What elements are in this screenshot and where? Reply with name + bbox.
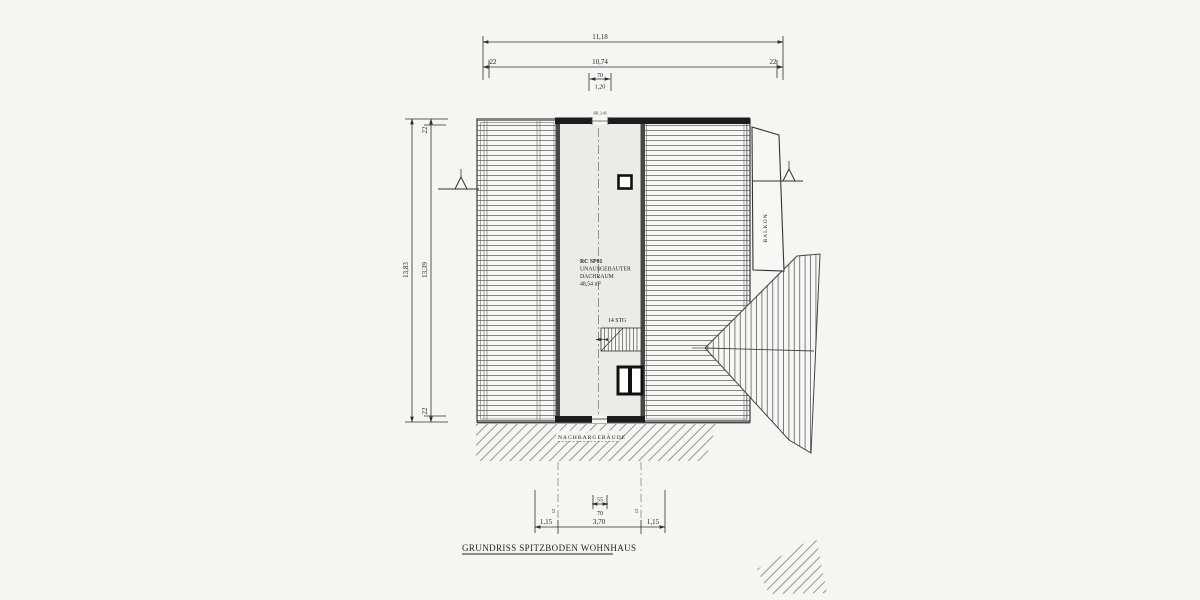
chimney-small xyxy=(619,176,632,189)
dim-top-window-width: 70 xyxy=(597,73,603,79)
floorplan-drawing: NACHBARGEBÄUDE BALKON xyxy=(0,0,1200,600)
room-code: RC SP01 xyxy=(580,259,602,265)
room-wall-left xyxy=(556,119,561,422)
stairs-label: 14 STG xyxy=(608,318,626,324)
dim-top-left-offset: 22 xyxy=(490,58,498,66)
dim-left-middle: 13,39 xyxy=(421,262,429,278)
dim-bottom-lower: 70 xyxy=(597,511,603,517)
room-name-line1: UNAUSGEBAUTER xyxy=(580,267,631,273)
dim-bottom-right: 1,15 xyxy=(647,518,660,526)
neighbor-building-hatch: NACHBARGEBÄUDE xyxy=(476,424,717,461)
balcony-label: BALKON xyxy=(763,213,769,242)
left-roof-wing xyxy=(477,119,557,422)
dim-top-overall: 11,18 xyxy=(592,33,608,41)
top-window-opening: BR 3.46 xyxy=(592,111,608,125)
dim-top-right-offset: 22 xyxy=(770,58,778,66)
room-area: 48,54 m² xyxy=(580,282,601,288)
top-window-label: BR 3.46 xyxy=(593,111,606,116)
room-wall-top xyxy=(555,118,750,125)
scanned-plan-page: NACHBARGEBÄUDE BALKON xyxy=(0,0,1200,600)
dim-bottom-wall-right: 12 xyxy=(634,509,639,514)
dim-left-bottom-offset: 22 xyxy=(421,407,429,415)
dim-bottom-left: 1,15 xyxy=(540,518,553,526)
bottom-door-opening xyxy=(592,416,607,424)
drawing-title-block: GRUNDRISS SPITZBODEN WOHNHAUS xyxy=(462,543,636,554)
dim-top-middle: 10,74 xyxy=(592,58,608,66)
dim-bottom-middle: 3,70 xyxy=(593,518,606,526)
dim-top-window-height: 1,20 xyxy=(595,85,606,91)
dim-left-overall: 13,83 xyxy=(402,262,410,278)
balcony: BALKON xyxy=(752,127,784,271)
dim-bottom-upper: 55 xyxy=(597,498,603,504)
dim-bottom-wall-left: 12 xyxy=(551,509,556,514)
drawing-title: GRUNDRISS SPITZBODEN WOHNHAUS xyxy=(462,543,636,553)
chimney-double xyxy=(618,367,642,394)
neighbor-label: NACHBARGEBÄUDE xyxy=(558,434,626,441)
dim-left-top-offset: 22 xyxy=(421,126,429,134)
room-name-line2: DACHRAUM xyxy=(580,274,614,280)
